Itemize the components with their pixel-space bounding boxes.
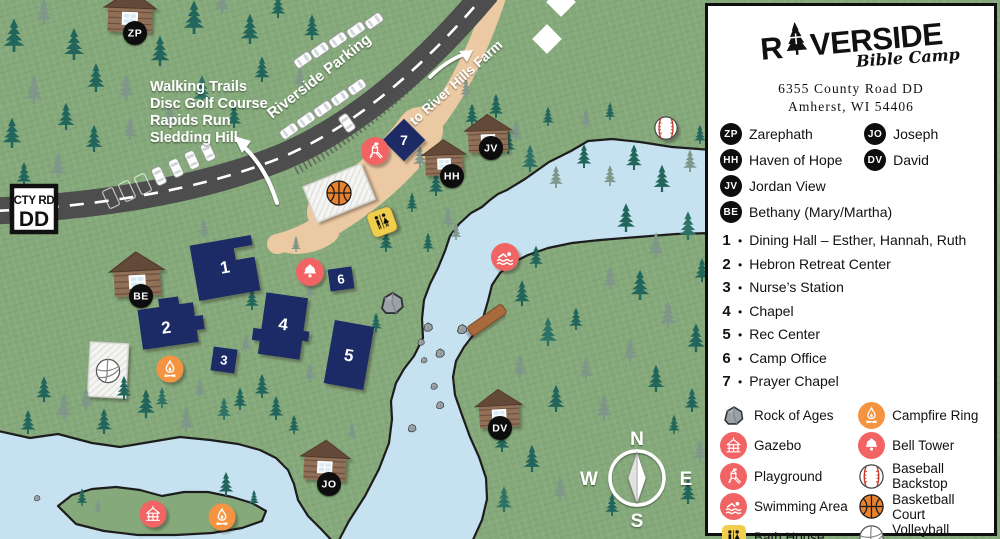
feature-legend: Rock of Ages Campfire Ring Gazebo Bell T…: [720, 400, 982, 539]
feature-label: Gazebo: [754, 438, 801, 453]
parked-car: [296, 111, 316, 130]
pine-tree: [58, 103, 75, 130]
pine-tree: [406, 193, 418, 212]
legend-cabin-zarephath: ZP Zarephath: [720, 123, 864, 145]
cabin-name: David: [893, 152, 929, 168]
legend-cabin-jordan-view: JV Jordan View: [720, 175, 864, 197]
item-label: Rec Center: [749, 326, 820, 342]
volleyball-icon: [96, 359, 119, 382]
feature-label: Rock of Ages: [754, 408, 834, 423]
parked-car: [310, 41, 330, 60]
legend-cabin-haven-of-hope: HH Haven of Hope: [720, 149, 864, 171]
svg-text:HH: HH: [444, 171, 460, 183]
legend-item-7: 7 • Prayer Chapel: [720, 373, 982, 390]
badge-jv: JV: [720, 175, 742, 197]
legend-cabin-david: DV David: [864, 149, 982, 171]
playground-icon: [361, 137, 389, 165]
pine-tree: [489, 94, 504, 118]
pine-tree: [580, 109, 592, 128]
pine-tree: [569, 308, 583, 330]
pine-tree: [668, 415, 680, 434]
badge-dv: DV: [488, 416, 512, 440]
cabin-name: Zarephath: [749, 126, 813, 142]
badge-zp: ZP: [720, 123, 742, 145]
pine-tree: [522, 145, 539, 172]
legend-item-3: 3 • Nurse’s Station: [720, 279, 982, 296]
pine-tree: [123, 118, 137, 140]
pine-tree: [50, 152, 66, 178]
pine-tree: [25, 75, 43, 104]
bell-icon: [858, 432, 885, 459]
building-nurses-station: 3: [210, 346, 237, 373]
building-number: 7: [400, 132, 408, 148]
trails-label-1: Walking Trails: [150, 79, 247, 95]
compass-s: S: [631, 511, 644, 532]
river: [338, 139, 712, 539]
feature-label: Campfire Ring: [892, 408, 978, 423]
cabin-name: Haven of Hope: [749, 152, 842, 168]
legend-baseball-backstop: Baseball Backstop: [858, 461, 982, 492]
trails-label-4: Sledding Hill: [150, 130, 238, 146]
pine-tree: [87, 63, 105, 92]
pine-tree: [596, 394, 612, 420]
pine-tree: [217, 398, 231, 420]
pine-tree: [151, 36, 170, 66]
trails-label-2: Disc Golf Course: [150, 96, 268, 112]
parked-car: [293, 51, 313, 70]
building-camp-office: 6: [328, 266, 355, 291]
legend-cabin-joseph: JO Joseph: [864, 123, 982, 145]
pine-tree: [233, 388, 247, 410]
pine-tree: [56, 393, 73, 420]
feature-label: Baseball Backstop: [892, 461, 982, 491]
pine-tree: [514, 280, 530, 306]
gazebo-icon: [720, 432, 747, 459]
compass-w: W: [580, 469, 598, 490]
svg-text:JO: JO: [321, 479, 336, 491]
cabin-name: Jordan View: [749, 178, 826, 194]
playground-icon: [720, 463, 747, 490]
swimming-area-icon: [491, 243, 519, 271]
legend-basketball-court: Basketball Court: [858, 492, 982, 523]
pine-tree: [579, 358, 593, 380]
rock-icon: [720, 402, 747, 429]
parked-car: [313, 100, 333, 119]
compass-e: E: [680, 469, 693, 490]
legend-item-4: 4 • Chapel: [720, 303, 982, 320]
pine-tree: [605, 102, 616, 120]
pine-tree: [156, 387, 169, 408]
badge-be: BE: [720, 201, 742, 223]
pine-tree: [648, 365, 665, 392]
compass-rose: N S E W: [580, 429, 692, 532]
item-label: Hebron Retreat Center: [749, 256, 891, 272]
gazebo-icon: [140, 501, 167, 528]
pine-tree: [198, 219, 210, 238]
legend-swimming-area: Swimming Area: [720, 492, 854, 523]
pine-tree: [542, 107, 554, 126]
pine-tree: [86, 125, 103, 152]
pine-tree: [36, 376, 52, 402]
parked-car: [184, 150, 201, 171]
baseball-icon: [858, 463, 885, 490]
bullet: •: [738, 258, 742, 272]
county-road-sign: CTY RD DD: [12, 186, 56, 232]
badge-jo: JO: [864, 123, 886, 145]
pine-tree: [548, 385, 565, 412]
legend-panel: R VERSIDE Bible Camp 6355 County Road DD…: [705, 3, 997, 536]
pine-tree: [21, 410, 36, 434]
pine-tree: [137, 389, 155, 418]
badge-dv: DV: [864, 149, 886, 171]
compass-n: N: [630, 429, 644, 450]
camp-logo: R VERSIDE Bible Camp: [720, 14, 982, 78]
feature-label: Bell Tower: [892, 438, 954, 453]
rock-of-ages: [382, 293, 403, 313]
badge-be: BE: [129, 284, 153, 308]
pine-tree: [513, 354, 528, 378]
basketball-icon: [327, 181, 351, 205]
bullet: •: [738, 352, 742, 366]
legend-bath-house: Bath House: [720, 522, 854, 539]
campfire-ring-icon-2: [209, 504, 236, 531]
address-line1: 6355 County Road DD: [720, 80, 982, 98]
building-dining-hall: 1: [190, 235, 261, 301]
basketball-icon: [858, 493, 885, 520]
item-label: Nurse’s Station: [749, 279, 844, 295]
camp-map-flyer: 1 2 3 4 5 6 7: [0, 0, 1000, 539]
item-number: 7: [720, 373, 733, 390]
baseball-backstop-icon: [655, 117, 677, 139]
feature-label: Basketball Court: [892, 492, 982, 522]
legend-volleyball-court: Volleyball Court: [858, 522, 982, 539]
pine-tree: [422, 233, 434, 252]
pine-tree: [539, 317, 557, 346]
bullet: •: [738, 305, 742, 319]
badge-jo: JO: [317, 472, 341, 496]
swimming-icon: [720, 493, 747, 520]
item-number: 3: [720, 279, 733, 296]
pine-tree: [96, 408, 112, 434]
bath-house-icon: [722, 525, 746, 539]
parked-car: [168, 158, 185, 179]
trails-label-3: Rapids Run: [150, 113, 231, 129]
pine-tree: [553, 478, 567, 500]
pine-tree: [269, 396, 284, 420]
pine-tree: [304, 14, 320, 40]
pine-tree: [17, 162, 32, 186]
pine-tree: [255, 374, 270, 398]
pine-tree: [178, 406, 194, 432]
pine-tree: [241, 334, 252, 352]
address-line2: Amherst, WI 54406: [720, 98, 982, 116]
item-label: Chapel: [749, 303, 793, 319]
pine-tree: [496, 486, 512, 512]
svg-text:ZP: ZP: [128, 28, 142, 40]
building-chapel: 4: [250, 291, 314, 360]
camp-address: 6355 County Road DD Amherst, WI 54406: [720, 80, 982, 115]
feature-label: Swimming Area: [754, 499, 848, 514]
legend-gazebo: Gazebo: [720, 431, 854, 462]
pine-tree: [271, 0, 286, 18]
item-label: Dining Hall – Esther, Hannah, Ruth: [749, 232, 966, 248]
pine-tree: [442, 207, 455, 228]
pine-tree: [118, 74, 134, 100]
spacer: [864, 175, 982, 197]
legend-item-1: 1 • Dining Hall – Esther, Hannah, Ruth: [720, 232, 982, 249]
pine-tree: [685, 388, 700, 412]
pine-tree: [288, 415, 300, 434]
bullet: •: [738, 328, 742, 342]
ballfield-base-marker: [532, 24, 562, 54]
item-number: 6: [720, 350, 733, 367]
legend-cabin-bethany: BE Bethany (Mary/Martha): [720, 201, 982, 223]
pine-tree: [510, 121, 523, 142]
pine-tree: [347, 422, 358, 440]
pine-tree: [603, 266, 618, 290]
numbered-legend: 1 • Dining Hall – Esther, Hannah, Ruth 2…: [720, 232, 982, 390]
item-number: 1: [720, 232, 733, 249]
forest: [2, 0, 709, 516]
road-sign-line1: CTY RD: [14, 195, 55, 207]
campfire-icon: [858, 402, 885, 429]
pine-tree: [184, 0, 205, 34]
pine-tree: [64, 28, 84, 60]
item-number: 2: [720, 256, 733, 273]
svg-text:BE: BE: [133, 291, 149, 303]
item-number: 4: [720, 303, 733, 320]
road-sign-line2: DD: [19, 208, 49, 231]
svg-text:JV: JV: [484, 143, 498, 155]
campfire-ring-icon: [157, 356, 184, 383]
legend-item-6: 6 • Camp Office: [720, 350, 982, 367]
cabin-name: Joseph: [893, 126, 938, 142]
legend-playground: Playground: [720, 461, 854, 492]
pine-tree: [623, 338, 638, 362]
legend-rock-of-ages: Rock of Ages: [720, 400, 854, 431]
pine-tree: [2, 118, 21, 148]
cabin-legend: ZP Zarephath JO Joseph HH Haven of Hope …: [720, 123, 982, 223]
badge-hh: HH: [720, 149, 742, 171]
pine-tree: [304, 363, 316, 382]
pine-tree: [241, 14, 260, 44]
pine-tree: [194, 379, 206, 398]
parked-car: [364, 12, 384, 31]
item-label: Prayer Chapel: [749, 373, 839, 389]
feature-label: Playground: [754, 469, 822, 484]
legend-item-2: 2 • Hebron Retreat Center: [720, 256, 982, 273]
pine-tree: [36, 0, 52, 24]
legend-item-5: 5 • Rec Center: [720, 326, 982, 343]
feature-label: Volleyball Court: [892, 522, 982, 539]
pine-tree: [214, 0, 230, 14]
legend-campfire-ring: Campfire Ring: [858, 400, 982, 431]
bullet: •: [738, 375, 742, 389]
bullet: •: [738, 281, 742, 295]
bell-tower-icon: [296, 258, 324, 286]
pine-tree: [524, 445, 541, 472]
building-rec-center: 5: [324, 320, 375, 390]
badge-jv: JV: [479, 136, 503, 160]
pine-tree: [254, 56, 270, 82]
pine-tree: [4, 18, 25, 52]
item-label: Camp Office: [749, 350, 827, 366]
badge-zp: ZP: [123, 21, 147, 45]
bullet: •: [738, 234, 742, 248]
legend-bell-tower: Bell Tower: [858, 431, 982, 462]
svg-text:DV: DV: [492, 423, 508, 435]
item-number: 5: [720, 326, 733, 343]
feature-label: Bath House: [754, 530, 825, 539]
badge-hh: HH: [440, 164, 464, 188]
pine-tree: [631, 270, 650, 300]
parked-car: [330, 89, 350, 108]
ballfield-base-marker: [546, 0, 576, 17]
pine-tree: [687, 323, 705, 352]
pine-tree: [660, 301, 677, 328]
volleyball-icon: [858, 524, 885, 539]
cabin-name: Bethany (Mary/Martha): [749, 204, 892, 220]
